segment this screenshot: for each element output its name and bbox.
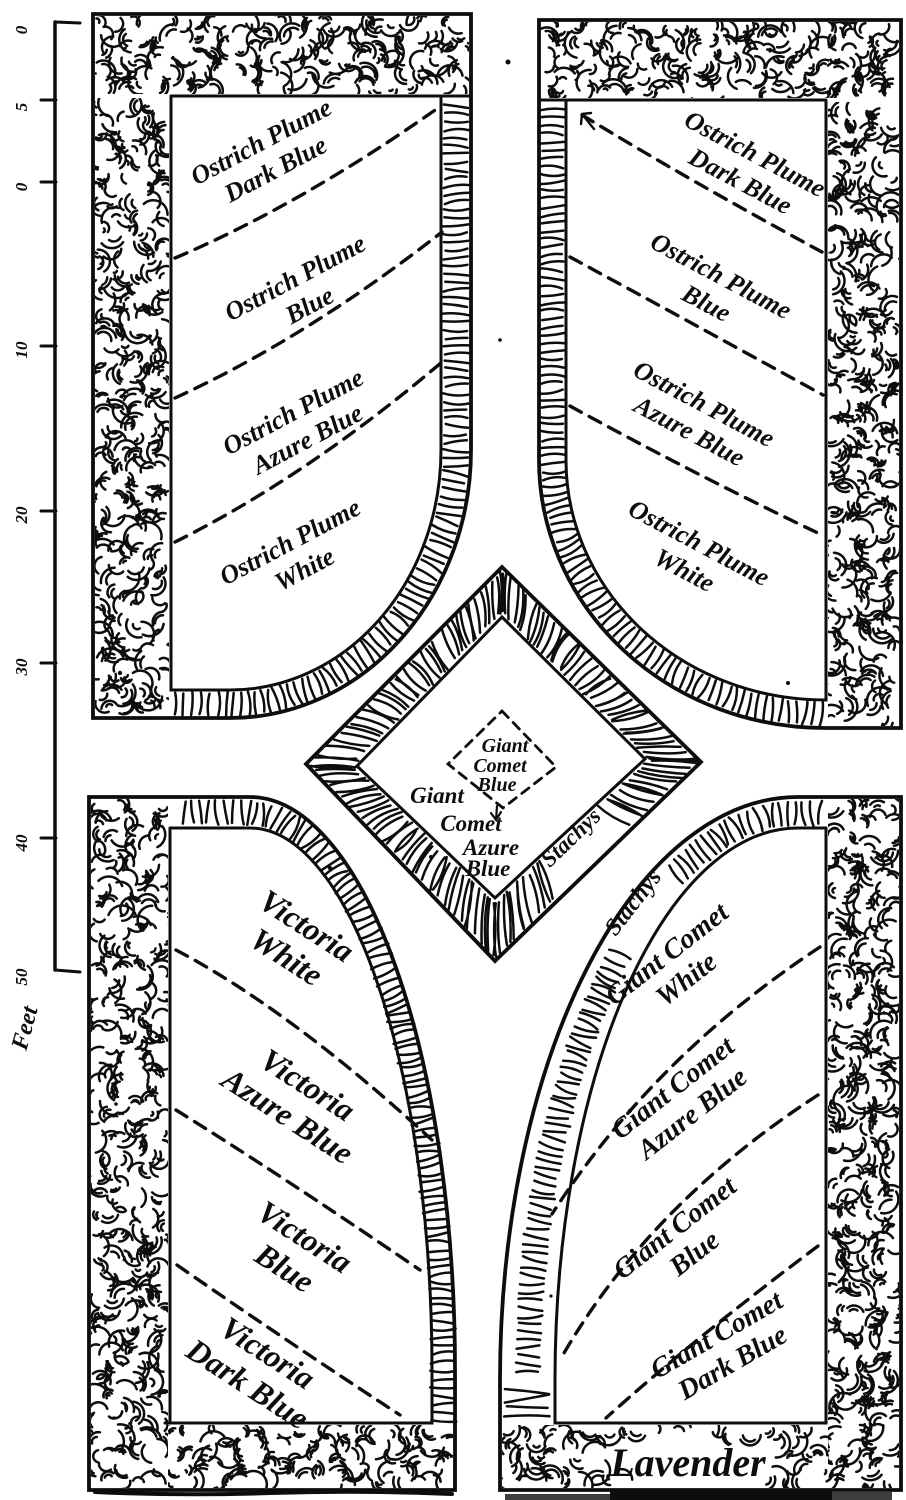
svg-text:0: 0 (12, 25, 31, 34)
svg-text:Giant: Giant (482, 735, 530, 757)
svg-text:Blue: Blue (477, 774, 517, 796)
svg-text:10: 10 (12, 341, 31, 359)
svg-text:Blue: Blue (465, 856, 511, 881)
svg-text:20: 20 (12, 506, 31, 525)
svg-text:Giant: Giant (410, 783, 464, 808)
svg-text:0: 0 (12, 182, 31, 191)
svg-text:30: 30 (12, 658, 31, 677)
svg-text:5: 5 (12, 102, 31, 111)
svg-text:40: 40 (12, 834, 31, 853)
svg-text:50: 50 (12, 968, 31, 986)
svg-text:Lavender: Lavender (609, 1440, 766, 1485)
